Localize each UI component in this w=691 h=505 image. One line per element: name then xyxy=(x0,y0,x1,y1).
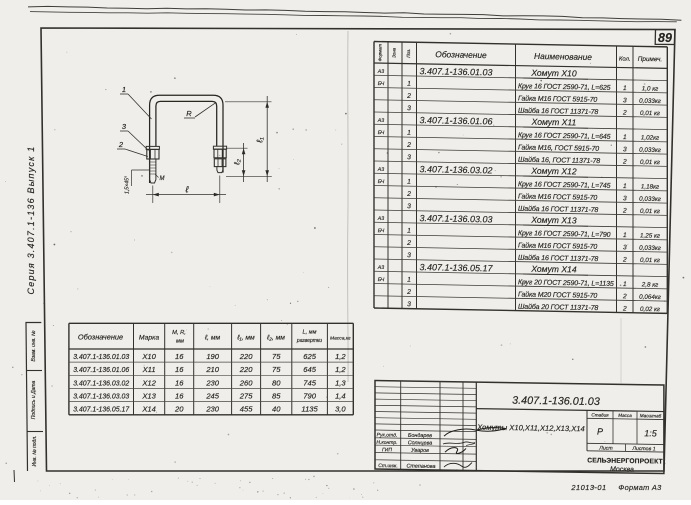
svg-text:1,3: 1,3 xyxy=(335,378,346,387)
svg-text:Формат А3: Формат А3 xyxy=(618,483,662,492)
svg-text:3: 3 xyxy=(407,301,411,308)
svg-text:ℓ₂, мм: ℓ₂, мм xyxy=(266,335,285,342)
svg-text:2: 2 xyxy=(406,240,411,247)
svg-text:ℓ, мм: ℓ, мм xyxy=(204,335,221,342)
svg-text:Шайба 16, ГОСТ 11371-78: Шайба 16, ГОСТ 11371-78 xyxy=(518,156,600,166)
svg-text:Масштаб: Масштаб xyxy=(640,413,662,418)
svg-text:Х10: Х10 xyxy=(141,352,156,361)
svg-text:Н.контр.: Н.контр. xyxy=(376,440,397,446)
svg-text:1: 1 xyxy=(407,81,411,88)
svg-text:Рук.отд.: Рук.отд. xyxy=(377,432,398,438)
svg-text:Поз.: Поз. xyxy=(406,48,411,57)
svg-text:1,18кг: 1,18кг xyxy=(641,183,659,190)
svg-text:Примеч.: Примеч. xyxy=(638,56,662,63)
svg-text:А3: А3 xyxy=(377,167,384,173)
svg-text:Обозначение: Обозначение xyxy=(435,49,487,60)
svg-text:0,01 кг: 0,01 кг xyxy=(640,208,660,215)
svg-text:1: 1 xyxy=(407,277,411,284)
svg-text:1,25 кг: 1,25 кг xyxy=(640,232,660,239)
svg-text:230: 230 xyxy=(205,378,219,387)
svg-text:3.407.1-136.03.02: 3.407.1-136.03.02 xyxy=(73,380,129,387)
svg-text:745: 745 xyxy=(303,378,316,387)
svg-text:2: 2 xyxy=(622,306,627,313)
svg-text:1: 1 xyxy=(623,281,627,288)
svg-text:Зона: Зона xyxy=(392,47,397,58)
svg-text:1,4: 1,4 xyxy=(335,391,346,400)
svg-text:3.407.1-136.01.03: 3.407.1-136.01.03 xyxy=(73,354,129,361)
svg-text:3: 3 xyxy=(623,195,627,202)
svg-text:3.407.1-136.05.17: 3.407.1-136.05.17 xyxy=(419,262,493,273)
svg-text:ℓ: ℓ xyxy=(185,185,189,195)
svg-text:Шайба 16 ГОСТ 11371-78: Шайба 16 ГОСТ 11371-78 xyxy=(518,254,598,263)
svg-text:3: 3 xyxy=(623,146,627,153)
svg-text:3.407.1-136.05.17: 3.407.1-136.05.17 xyxy=(73,407,130,414)
svg-text:0,033кг: 0,033кг xyxy=(639,98,661,105)
svg-text:3: 3 xyxy=(623,97,627,104)
svg-text:1,2: 1,2 xyxy=(335,365,346,374)
svg-text:БЧ: БЧ xyxy=(378,179,385,185)
svg-text:1,0 кг: 1,0 кг xyxy=(642,85,659,92)
svg-text:Москва: Москва xyxy=(610,466,634,473)
svg-text:0,064кг: 0,064кг xyxy=(639,294,661,301)
svg-text:Гайка М20 ГОСТ 5915-70: Гайка М20 ГОСТ 5915-70 xyxy=(518,290,597,299)
svg-text:1:5: 1:5 xyxy=(644,428,658,438)
svg-text:89: 89 xyxy=(658,31,672,45)
svg-text:Х13: Х13 xyxy=(141,391,156,400)
svg-text:Гайка М16 ГОСТ 5915-70: Гайка М16 ГОСТ 5915-70 xyxy=(518,241,597,250)
svg-text:3.407.1-136.01.06: 3.407.1-136.01.06 xyxy=(73,367,129,374)
svg-text:Обозначение: Обозначение xyxy=(78,333,123,342)
svg-text:210: 210 xyxy=(205,365,219,374)
svg-text:1: 1 xyxy=(623,232,627,239)
svg-text:мм: мм xyxy=(176,339,184,345)
svg-text:0,033кг: 0,033кг xyxy=(639,147,661,154)
svg-text:Бондарев: Бондарев xyxy=(408,433,432,439)
svg-text:Хомут Х14: Хомут Х14 xyxy=(530,264,576,275)
svg-text:Р: Р xyxy=(597,426,603,436)
svg-text:40: 40 xyxy=(272,405,281,414)
svg-text:1: 1 xyxy=(407,179,411,186)
svg-text:Гайка М16 ГОСТ 5915-70: Гайка М16 ГОСТ 5915-70 xyxy=(518,94,597,103)
svg-text:1: 1 xyxy=(122,85,126,94)
svg-text:1,02кг: 1,02кг xyxy=(641,134,659,141)
svg-text:16: 16 xyxy=(175,352,184,361)
svg-text:3.407.1-136.03.02: 3.407.1-136.03.02 xyxy=(419,164,492,175)
svg-text:Шайба 16 ГОСТ 11371-78: Шайба 16 ГОСТ 11371-78 xyxy=(518,107,598,116)
svg-text:Шайба 16 ГОСТ 11371-78: Шайба 16 ГОСТ 11371-78 xyxy=(518,205,598,214)
svg-text:Степанова: Степанова xyxy=(406,463,435,469)
svg-text:2: 2 xyxy=(622,208,627,215)
svg-text:2: 2 xyxy=(406,142,411,149)
svg-text:3.407.1-136.03.03: 3.407.1-136.03.03 xyxy=(419,213,492,224)
svg-text:СЕЛЬЭНЕРГОПРОЕКТ: СЕЛЬЭНЕРГОПРОЕКТ xyxy=(587,457,663,465)
svg-text:16: 16 xyxy=(175,391,184,400)
svg-text:2: 2 xyxy=(406,191,411,198)
svg-text:Подпись и Дата: Подпись и Дата xyxy=(31,380,37,419)
svg-text:1: 1 xyxy=(623,134,627,141)
svg-text:M: M xyxy=(160,176,165,182)
svg-text:1,5×45°: 1,5×45° xyxy=(125,176,131,194)
svg-text:0,01 кг: 0,01 кг xyxy=(640,159,660,166)
svg-text:Хомут Х10: Хомут Х10 xyxy=(530,68,576,79)
svg-text:1: 1 xyxy=(407,130,411,137)
svg-text:1,2: 1,2 xyxy=(335,352,346,361)
svg-text:развертки: развертки xyxy=(296,338,322,344)
svg-text:Листов 1: Листов 1 xyxy=(631,446,655,452)
svg-text:645: 645 xyxy=(303,365,316,374)
svg-text:Хомут Х13: Хомут Х13 xyxy=(530,215,576,226)
svg-text:0,02 кг: 0,02 кг xyxy=(640,306,660,313)
svg-text:3.407.1-136.01.03: 3.407.1-136.01.03 xyxy=(512,395,600,408)
svg-text:R: R xyxy=(186,109,192,118)
svg-text:2: 2 xyxy=(622,293,627,300)
svg-text:2,8 кг: 2,8 кг xyxy=(641,281,659,288)
svg-text:Гайка М16 ГОСТ 5915-70: Гайка М16 ГОСТ 5915-70 xyxy=(518,192,597,201)
svg-text:220: 220 xyxy=(239,365,253,374)
svg-text:Масса,кг: Масса,кг xyxy=(330,336,351,342)
svg-text:Масса: Масса xyxy=(618,413,632,418)
svg-text:Гайка М16, ГОСТ 5915-70: Гайка М16, ГОСТ 5915-70 xyxy=(518,143,599,152)
svg-text:Марка: Марка xyxy=(139,335,160,342)
svg-text:1: 1 xyxy=(623,85,627,92)
svg-text:3: 3 xyxy=(407,203,411,210)
svg-text:2: 2 xyxy=(622,110,627,117)
svg-text:16: 16 xyxy=(175,365,184,374)
svg-text:Серия 3.407.1-136 Выпуск 1: Серия 3.407.1-136 Выпуск 1 xyxy=(26,146,36,295)
svg-text:Солнцева: Солнцева xyxy=(408,440,433,446)
svg-text:245: 245 xyxy=(205,391,219,400)
svg-text:Взам. инв. №: Взам. инв. № xyxy=(31,330,37,362)
svg-text:1: 1 xyxy=(623,183,627,190)
svg-text:3.407.1-136.01.06: 3.407.1-136.01.06 xyxy=(419,115,492,126)
svg-text:3: 3 xyxy=(407,154,411,161)
svg-text:75: 75 xyxy=(272,365,281,374)
svg-text:2: 2 xyxy=(406,93,411,100)
svg-text:А3: А3 xyxy=(377,69,384,75)
svg-text:L, мм: L, мм xyxy=(303,330,317,336)
svg-text:БЧ: БЧ xyxy=(378,277,385,283)
svg-text:ℓ₁, мм: ℓ₁, мм xyxy=(236,335,255,342)
svg-text:1135: 1135 xyxy=(301,405,318,414)
svg-text:Хомут Х12: Хомут Х12 xyxy=(530,166,576,177)
svg-text:ℓ₁: ℓ₁ xyxy=(255,137,265,144)
svg-text:3.407.1-136.03.03: 3.407.1-136.03.03 xyxy=(73,393,129,400)
svg-text:М, R,: М, R, xyxy=(172,330,186,336)
svg-text:А3: А3 xyxy=(377,265,384,271)
svg-text:21013-01: 21013-01 xyxy=(570,483,606,492)
svg-text:Хомут Х11: Хомут Х11 xyxy=(531,117,577,128)
svg-text:0,01 кг: 0,01 кг xyxy=(640,257,660,264)
svg-text:75: 75 xyxy=(272,352,281,361)
svg-text:Формат: Формат xyxy=(378,44,383,62)
svg-text:БЧ: БЧ xyxy=(378,81,385,87)
svg-text:260: 260 xyxy=(239,378,253,387)
svg-text:625: 625 xyxy=(303,352,316,361)
svg-text:16: 16 xyxy=(175,378,184,387)
svg-text:0,033кг: 0,033кг xyxy=(639,196,661,203)
svg-text:Уваров: Уваров xyxy=(410,448,429,454)
svg-text:2: 2 xyxy=(622,159,627,166)
svg-text:Х11: Х11 xyxy=(142,365,156,374)
svg-text:Ст.инж.: Ст.инж. xyxy=(378,463,397,469)
svg-text:3: 3 xyxy=(407,105,411,112)
svg-text:455: 455 xyxy=(240,405,253,414)
svg-text:0,01 кг: 0,01 кг xyxy=(640,110,660,117)
svg-text:Х12: Х12 xyxy=(141,378,156,387)
svg-text:85: 85 xyxy=(272,391,281,400)
svg-text:1: 1 xyxy=(407,228,411,235)
svg-text:Шайба 20 ГОСТ 11371-78: Шайба 20 ГОСТ 11371-78 xyxy=(518,303,598,312)
svg-text:3,0: 3,0 xyxy=(335,405,346,414)
svg-text:БЧ: БЧ xyxy=(378,228,385,234)
svg-text:230: 230 xyxy=(205,405,219,414)
svg-text:Х14: Х14 xyxy=(141,405,156,414)
svg-text:220: 220 xyxy=(239,352,253,361)
svg-text:ГИП: ГИП xyxy=(382,447,392,453)
svg-text:Инв. № подл.: Инв. № подл. xyxy=(32,435,38,466)
svg-text:Лист: Лист xyxy=(598,446,613,452)
svg-text:2: 2 xyxy=(622,257,627,264)
svg-text:А3: А3 xyxy=(377,118,384,124)
svg-text:БЧ: БЧ xyxy=(378,130,385,136)
svg-text:0,033кг: 0,033кг xyxy=(639,245,661,252)
svg-text:20: 20 xyxy=(174,405,184,414)
svg-text:275: 275 xyxy=(239,391,253,400)
svg-text:190: 190 xyxy=(206,352,219,361)
svg-text:Кол.: Кол. xyxy=(619,56,631,62)
svg-text:Наименование: Наименование xyxy=(534,51,592,62)
svg-text:80: 80 xyxy=(272,378,281,387)
svg-text:Хомуты Х10,Х11,Х12,Х13,Х14: Хомуты Х10,Х11,Х12,Х13,Х14 xyxy=(476,423,584,434)
svg-text:2: 2 xyxy=(406,289,411,296)
svg-text:3: 3 xyxy=(623,244,627,251)
svg-text:2: 2 xyxy=(118,140,124,149)
svg-text:А3: А3 xyxy=(377,216,384,222)
svg-text:ℓ₂: ℓ₂ xyxy=(233,159,242,166)
svg-text:Стадия: Стадия xyxy=(591,412,609,417)
svg-text:3: 3 xyxy=(407,252,411,259)
svg-text:790: 790 xyxy=(303,391,316,400)
svg-text:3.407.1-136.01.03: 3.407.1-136.01.03 xyxy=(419,66,492,77)
